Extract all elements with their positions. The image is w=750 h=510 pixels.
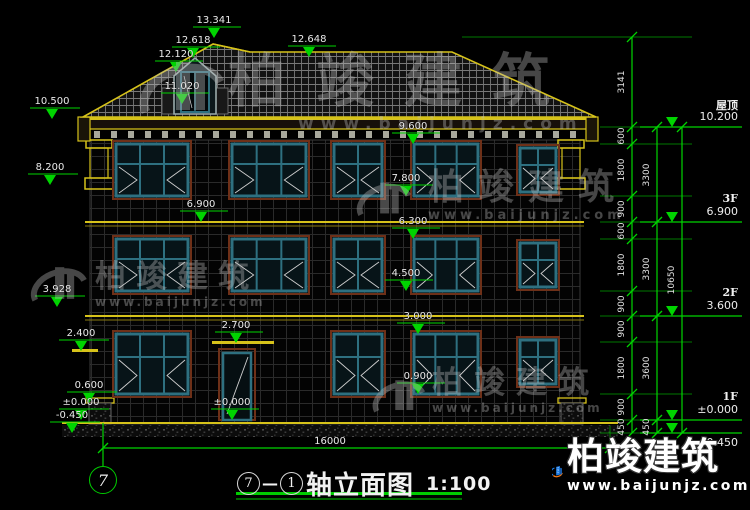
window: [517, 337, 559, 387]
elevation-marker-label: 8.200: [36, 162, 65, 173]
dimension-value: 3300: [642, 163, 652, 186]
elevation-marker-label: 3.928: [43, 284, 72, 295]
dentil-row: [94, 131, 576, 138]
axis-circle-end: 1: [280, 472, 303, 495]
window: [229, 236, 309, 294]
floor-elevation: ±0.000: [688, 403, 738, 416]
dimension-value: 600: [617, 127, 627, 144]
window: [331, 236, 385, 294]
floor-elevation: 6.900: [688, 205, 738, 218]
overall-width-dimension: 16000: [314, 436, 346, 447]
grid-axis-bubble: 7: [89, 466, 117, 494]
axis-circle-start: 7: [237, 472, 260, 495]
dimension-value: 900: [617, 200, 627, 217]
elevation-marker-label: 0.600: [75, 380, 104, 391]
window: [411, 141, 481, 199]
window: [517, 240, 559, 290]
dimension-value: 900: [617, 295, 627, 312]
floor-label: 2F: [692, 286, 738, 299]
floor-elevation: 3.600: [688, 299, 738, 312]
brand-logo-text: 柏竣建筑: [567, 438, 750, 477]
window: [113, 236, 191, 294]
dimension-value: 900: [617, 320, 627, 337]
door-canopy: [212, 341, 274, 344]
window: [331, 331, 385, 397]
elevation-marker-label: 4.500: [392, 268, 421, 279]
elevation-drawing-canvas: 柏竣建筑 www.baijunjz.com 柏竣建筑 www.baijunjz.…: [0, 0, 750, 510]
elevation-marker-label: 6.300: [399, 216, 428, 227]
brand-logo-url: www.baijunjz.com: [567, 478, 750, 494]
elevation-marker-label: 2.700: [222, 320, 251, 331]
elevation-marker-label: 13.341: [197, 15, 232, 26]
window: [229, 141, 309, 199]
dimension-value: 3600: [642, 357, 652, 380]
title-scale: 1:100: [426, 473, 491, 495]
title-text: 轴立面图: [306, 465, 414, 502]
dimension-value: 450: [642, 418, 652, 435]
elevation-marker-label: 12.120: [159, 49, 194, 60]
dimension-value: 1800: [617, 159, 627, 182]
window: [411, 236, 481, 294]
elevation-marker-label: 7.800: [392, 173, 421, 184]
dimension-value: 3300: [642, 258, 652, 281]
side-ledge: [72, 349, 98, 352]
floor-elevation: 10.200: [688, 110, 738, 123]
dimension-value: 1800: [617, 357, 627, 380]
floor-label: 1F: [692, 390, 738, 403]
window: [331, 141, 385, 199]
dimension-value: 1800: [617, 254, 627, 277]
elevation-marker-label: ±0.000: [213, 397, 250, 408]
window: [517, 145, 559, 195]
elevation-marker-label: -0.450: [56, 410, 88, 421]
ground-line: [62, 423, 618, 437]
window: [113, 331, 191, 397]
elevation-marker-label: 12.618: [176, 35, 211, 46]
cad-linework: [0, 0, 750, 510]
elevation-marker-label: 12.648: [292, 34, 327, 45]
elevation-marker-label: 9.600: [399, 121, 428, 132]
elevation-marker-label: 6.900: [187, 199, 216, 210]
brand-logo-icon: [552, 438, 563, 504]
brand-logo: 柏竣建筑 www.baijunjz.com: [552, 438, 750, 510]
window: [113, 141, 191, 199]
elevation-marker-label: 11.020: [165, 81, 200, 92]
elevation-marker-label: 0.900: [404, 371, 433, 382]
elevation-marker-label: ±0.000: [62, 397, 99, 408]
dimension-value: 10650: [667, 266, 677, 295]
elevation-marker-label: 2.400: [67, 328, 96, 339]
elevation-marker-label: 10.500: [35, 96, 70, 107]
floor-label: 3F: [692, 192, 738, 205]
dimension-value: 900: [617, 398, 627, 415]
dimension-value: 450: [617, 418, 627, 435]
elevation-marker-label: 3.000: [404, 311, 433, 322]
drawing-title: 7 — 1 轴立面图 1:100: [236, 465, 492, 502]
axis-range-dash: —: [262, 474, 278, 493]
dimension-value: 600: [617, 222, 627, 239]
dimension-value: 3141: [617, 71, 627, 94]
